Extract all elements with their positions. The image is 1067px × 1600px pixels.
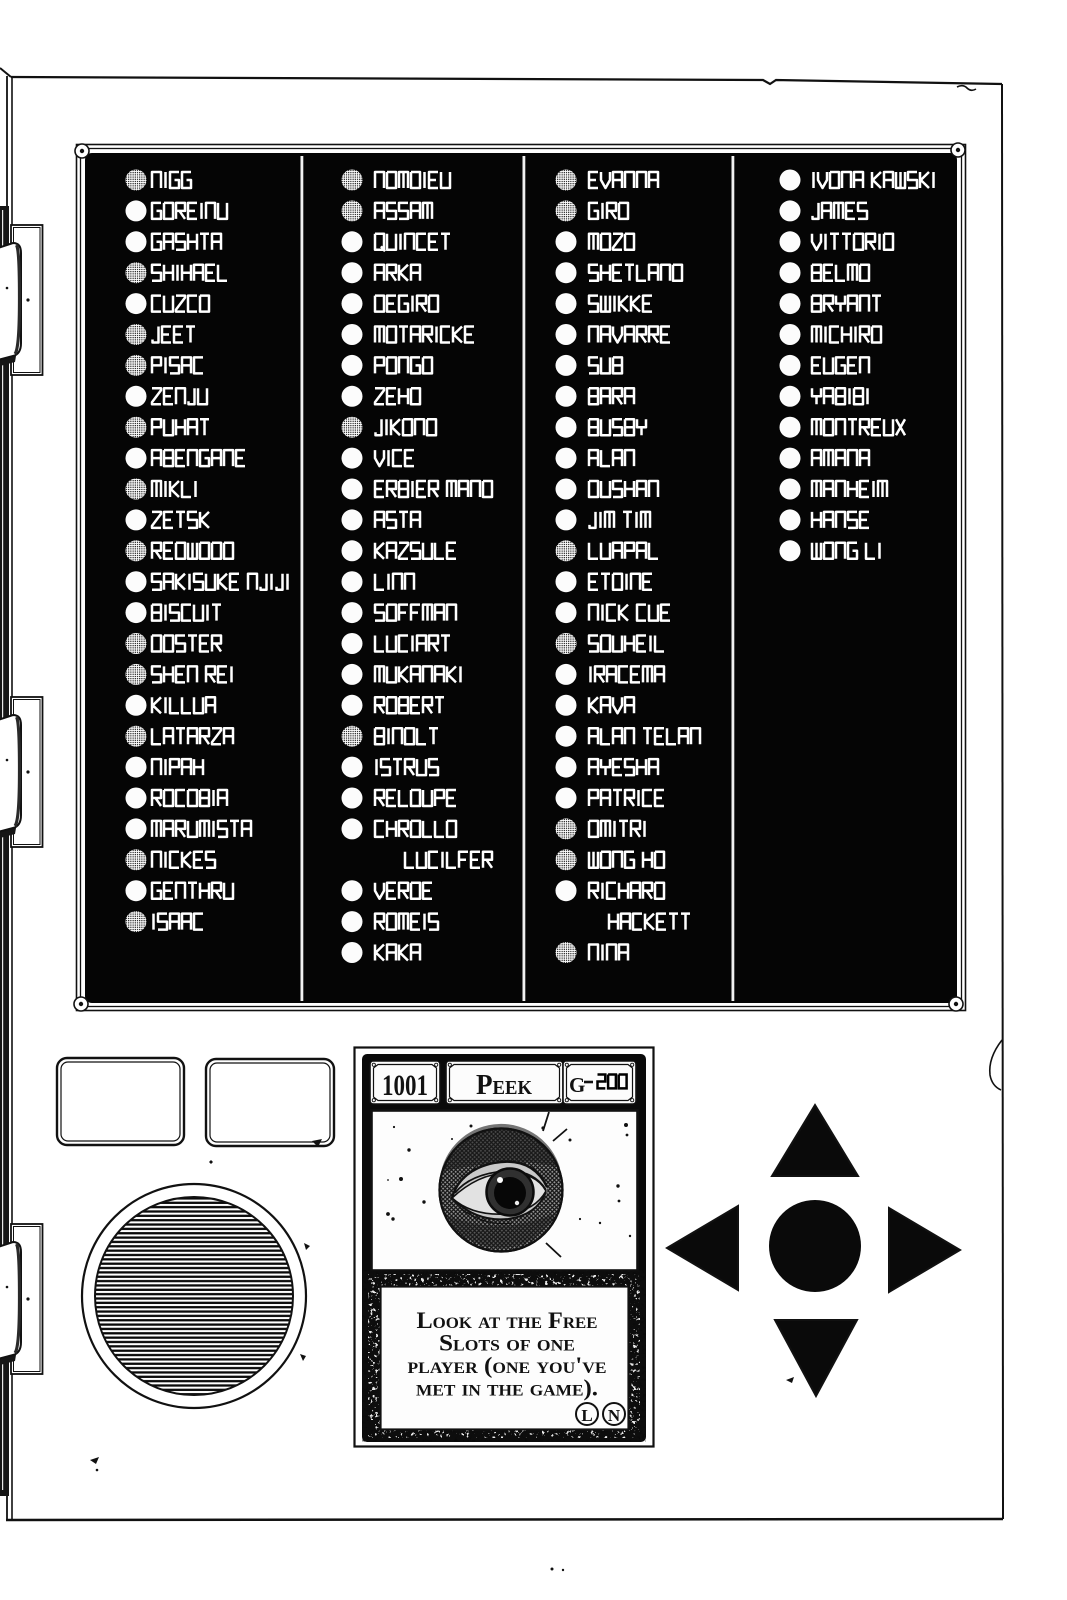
- svg-text:L: L: [581, 1406, 592, 1425]
- svg-text:Peek: Peek: [476, 1069, 532, 1101]
- svg-text:N: N: [608, 1406, 621, 1425]
- svg-text:1001: 1001: [382, 1069, 428, 1102]
- svg-text:Look at the Free: Look at the Free: [417, 1308, 598, 1333]
- svg-text:player (one you've: player (one you've: [408, 1353, 607, 1378]
- svg-text:met in the game).: met in the game).: [416, 1376, 598, 1401]
- svg-text:G: G: [569, 1073, 585, 1097]
- svg-text:Slots of one: Slots of one: [439, 1331, 575, 1356]
